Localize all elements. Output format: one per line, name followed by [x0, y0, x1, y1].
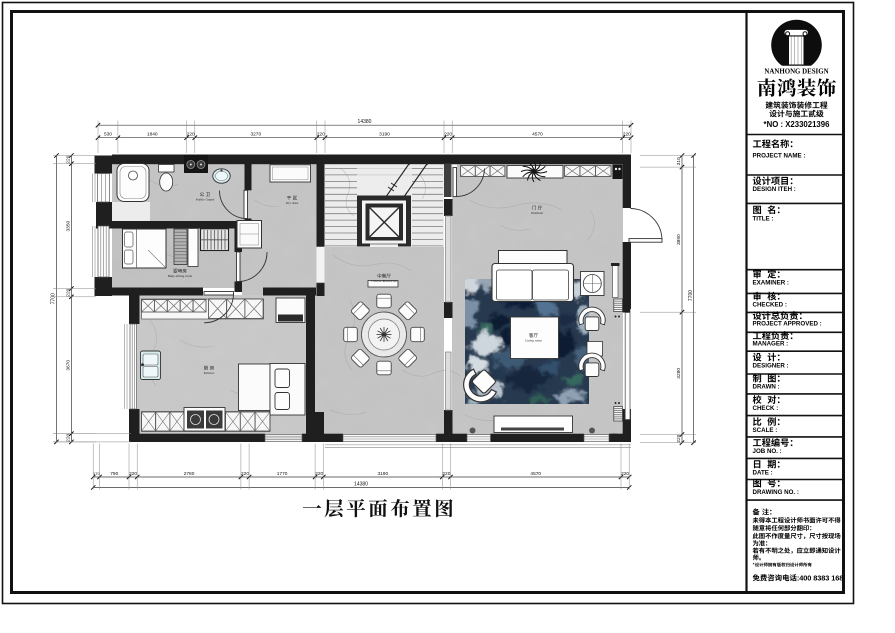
svg-text:Baby-sitting room: Baby-sitting room — [168, 274, 193, 278]
svg-text:220: 220 — [444, 132, 452, 138]
svg-text:310: 310 — [676, 157, 682, 165]
svg-text:14380: 14380 — [358, 119, 372, 125]
svg-text:7700: 7700 — [688, 290, 694, 301]
svg-text:220: 220 — [621, 471, 629, 477]
svg-text:2780: 2780 — [184, 471, 195, 477]
svg-text:DESIGNER :: DESIGNER : — [753, 363, 789, 370]
svg-text:220: 220 — [241, 471, 249, 477]
svg-text:JOB NO. :: JOB NO. : — [753, 448, 782, 455]
svg-text:530: 530 — [104, 132, 112, 138]
svg-text:3280: 3280 — [676, 368, 682, 379]
svg-text:DATE :: DATE : — [753, 469, 773, 476]
svg-text:PROJECT APPROVED :: PROJECT APPROVED : — [753, 321, 822, 328]
svg-text:DESIGN ITEH :: DESIGN ITEH : — [753, 186, 796, 193]
svg-text:EXAMINER :: EXAMINER : — [753, 280, 789, 287]
svg-text:14380: 14380 — [354, 481, 368, 487]
svg-text:CHECK :: CHECK : — [753, 405, 779, 412]
svg-text:220: 220 — [66, 288, 72, 296]
svg-text:220: 220 — [187, 132, 195, 138]
svg-text:220: 220 — [317, 132, 325, 138]
svg-text:MANAGER :: MANAGER : — [753, 340, 789, 347]
svg-text:4570: 4570 — [532, 132, 543, 138]
svg-text:CHECKED :: CHECKED : — [753, 301, 787, 308]
svg-text::400 8383 168: :400 8383 168 — [797, 574, 843, 583]
svg-text:Public Guard: Public Guard — [195, 198, 215, 202]
svg-text:Kitchen: Kitchen — [203, 371, 215, 375]
svg-text:7700: 7700 — [51, 293, 57, 304]
svg-text:3350: 3350 — [66, 220, 72, 231]
svg-text:DRAWN :: DRAWN : — [753, 384, 780, 391]
svg-text:220: 220 — [66, 433, 72, 441]
svg-text:3890: 3890 — [676, 234, 682, 245]
svg-text:220: 220 — [442, 471, 450, 477]
svg-text:Living room: Living room — [524, 339, 542, 343]
svg-text:220: 220 — [676, 434, 682, 442]
svg-text:3270: 3270 — [250, 132, 261, 138]
svg-text:PROJECT NAME :: PROJECT NAME : — [753, 153, 806, 160]
svg-text:220: 220 — [129, 471, 137, 477]
svg-text:*NO : X233021396: *NO : X233021396 — [764, 120, 831, 129]
svg-text:NANHONG DESIGN: NANHONG DESIGN — [764, 69, 828, 76]
svg-text:220: 220 — [66, 155, 72, 163]
svg-text:3670: 3670 — [66, 360, 72, 371]
svg-text:3190: 3190 — [379, 132, 390, 138]
svg-text:DRAWING NO. :: DRAWING NO. : — [753, 489, 799, 496]
svg-text:Chinese Restaurant: Chinese Restaurant — [371, 279, 399, 283]
svg-text:1770: 1770 — [277, 471, 288, 477]
svg-text:790: 790 — [110, 471, 118, 477]
svg-text:220: 220 — [623, 132, 631, 138]
svg-text:4570: 4570 — [530, 471, 541, 477]
svg-text:Dry Area: Dry Area — [285, 201, 299, 205]
svg-text:SCALE :: SCALE : — [753, 427, 778, 434]
svg-text:220: 220 — [315, 471, 323, 477]
svg-text:TITLE :: TITLE : — [753, 216, 774, 223]
svg-text:Vestibule: Vestibule — [531, 211, 544, 215]
svg-text:1840: 1840 — [147, 132, 158, 138]
svg-text:3190: 3190 — [377, 471, 388, 477]
